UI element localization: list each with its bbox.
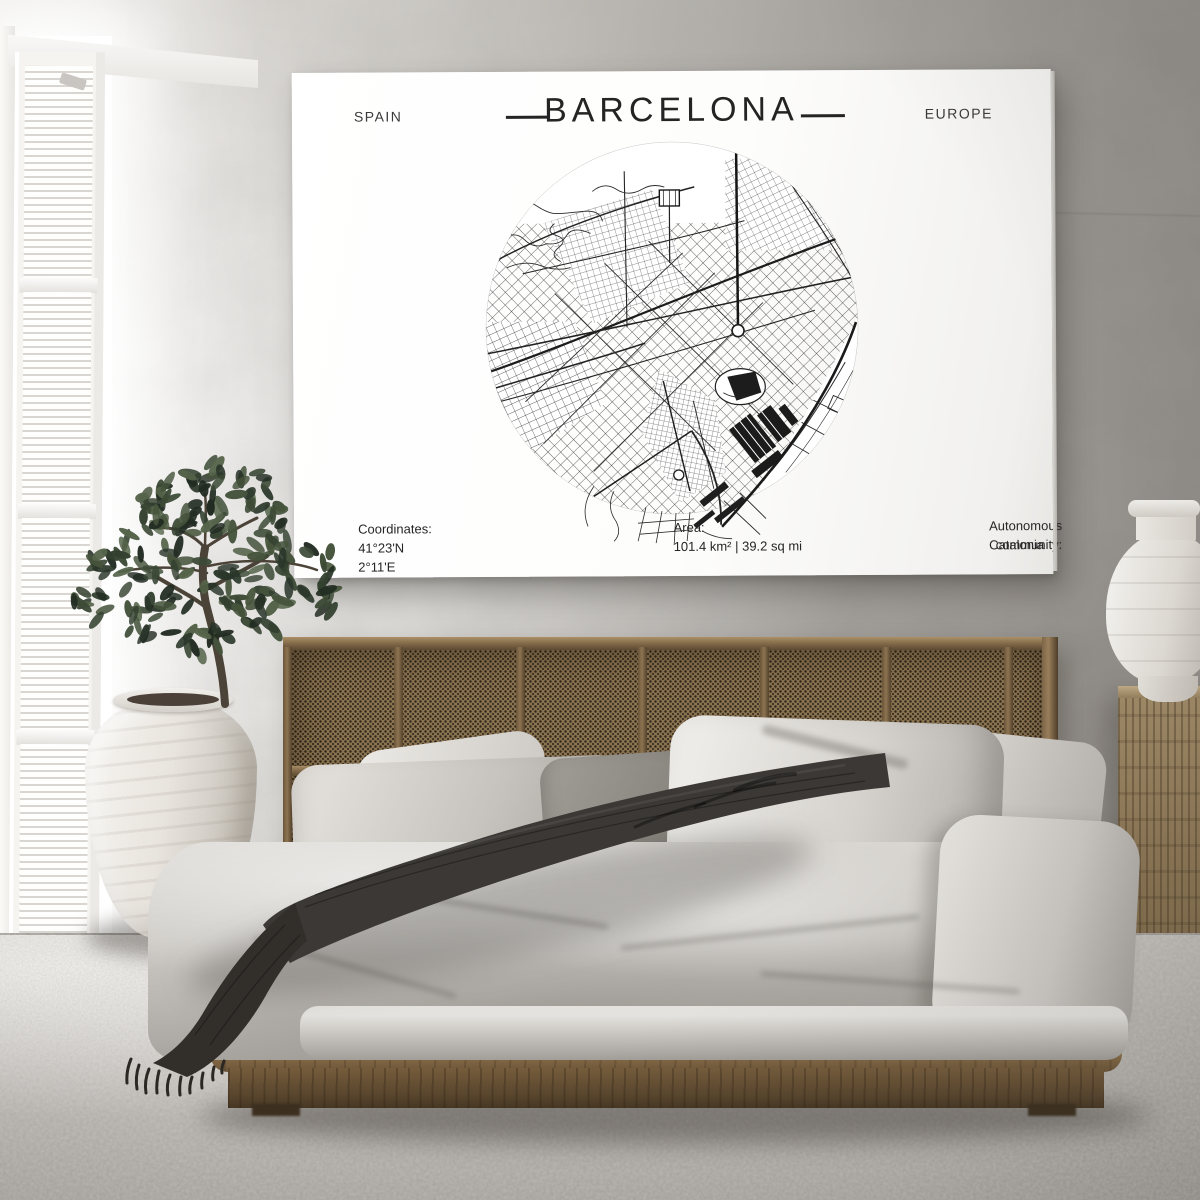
- community-value: Catalonia: [989, 536, 1044, 555]
- coordinates-value: 41°23'N 2°11'E: [358, 539, 404, 577]
- area-label: Area:: [674, 519, 705, 538]
- louver-slats: [24, 66, 93, 278]
- white-vase-foot: [1138, 676, 1198, 702]
- bedroom-scene: SPAIN BARCELONA EUROPE Coordinates: 41°2…: [0, 0, 1200, 1200]
- charcoal-throw-blanket: [95, 735, 915, 1097]
- potted-tree: [55, 448, 345, 710]
- bed-foot: [1028, 1104, 1076, 1116]
- tree-foliage: [69, 453, 343, 666]
- white-vase-neck: [1136, 514, 1196, 540]
- louver-slats: [19, 744, 88, 940]
- poster-continent-label: EUROPE: [925, 105, 993, 121]
- poster-area: Area: 101.4 km² | 39.2 sq mi: [294, 517, 1053, 540]
- title-dash-right: [801, 114, 845, 117]
- bed-foot: [252, 1104, 300, 1116]
- white-vase-lip: [1128, 500, 1200, 517]
- barcelona-map-poster: SPAIN BARCELONA EUROPE Coordinates: 41°2…: [292, 69, 1054, 578]
- barcelona-street-map: [292, 69, 1054, 578]
- area-value: 101.4 km² | 39.2 sq mi: [674, 537, 802, 557]
